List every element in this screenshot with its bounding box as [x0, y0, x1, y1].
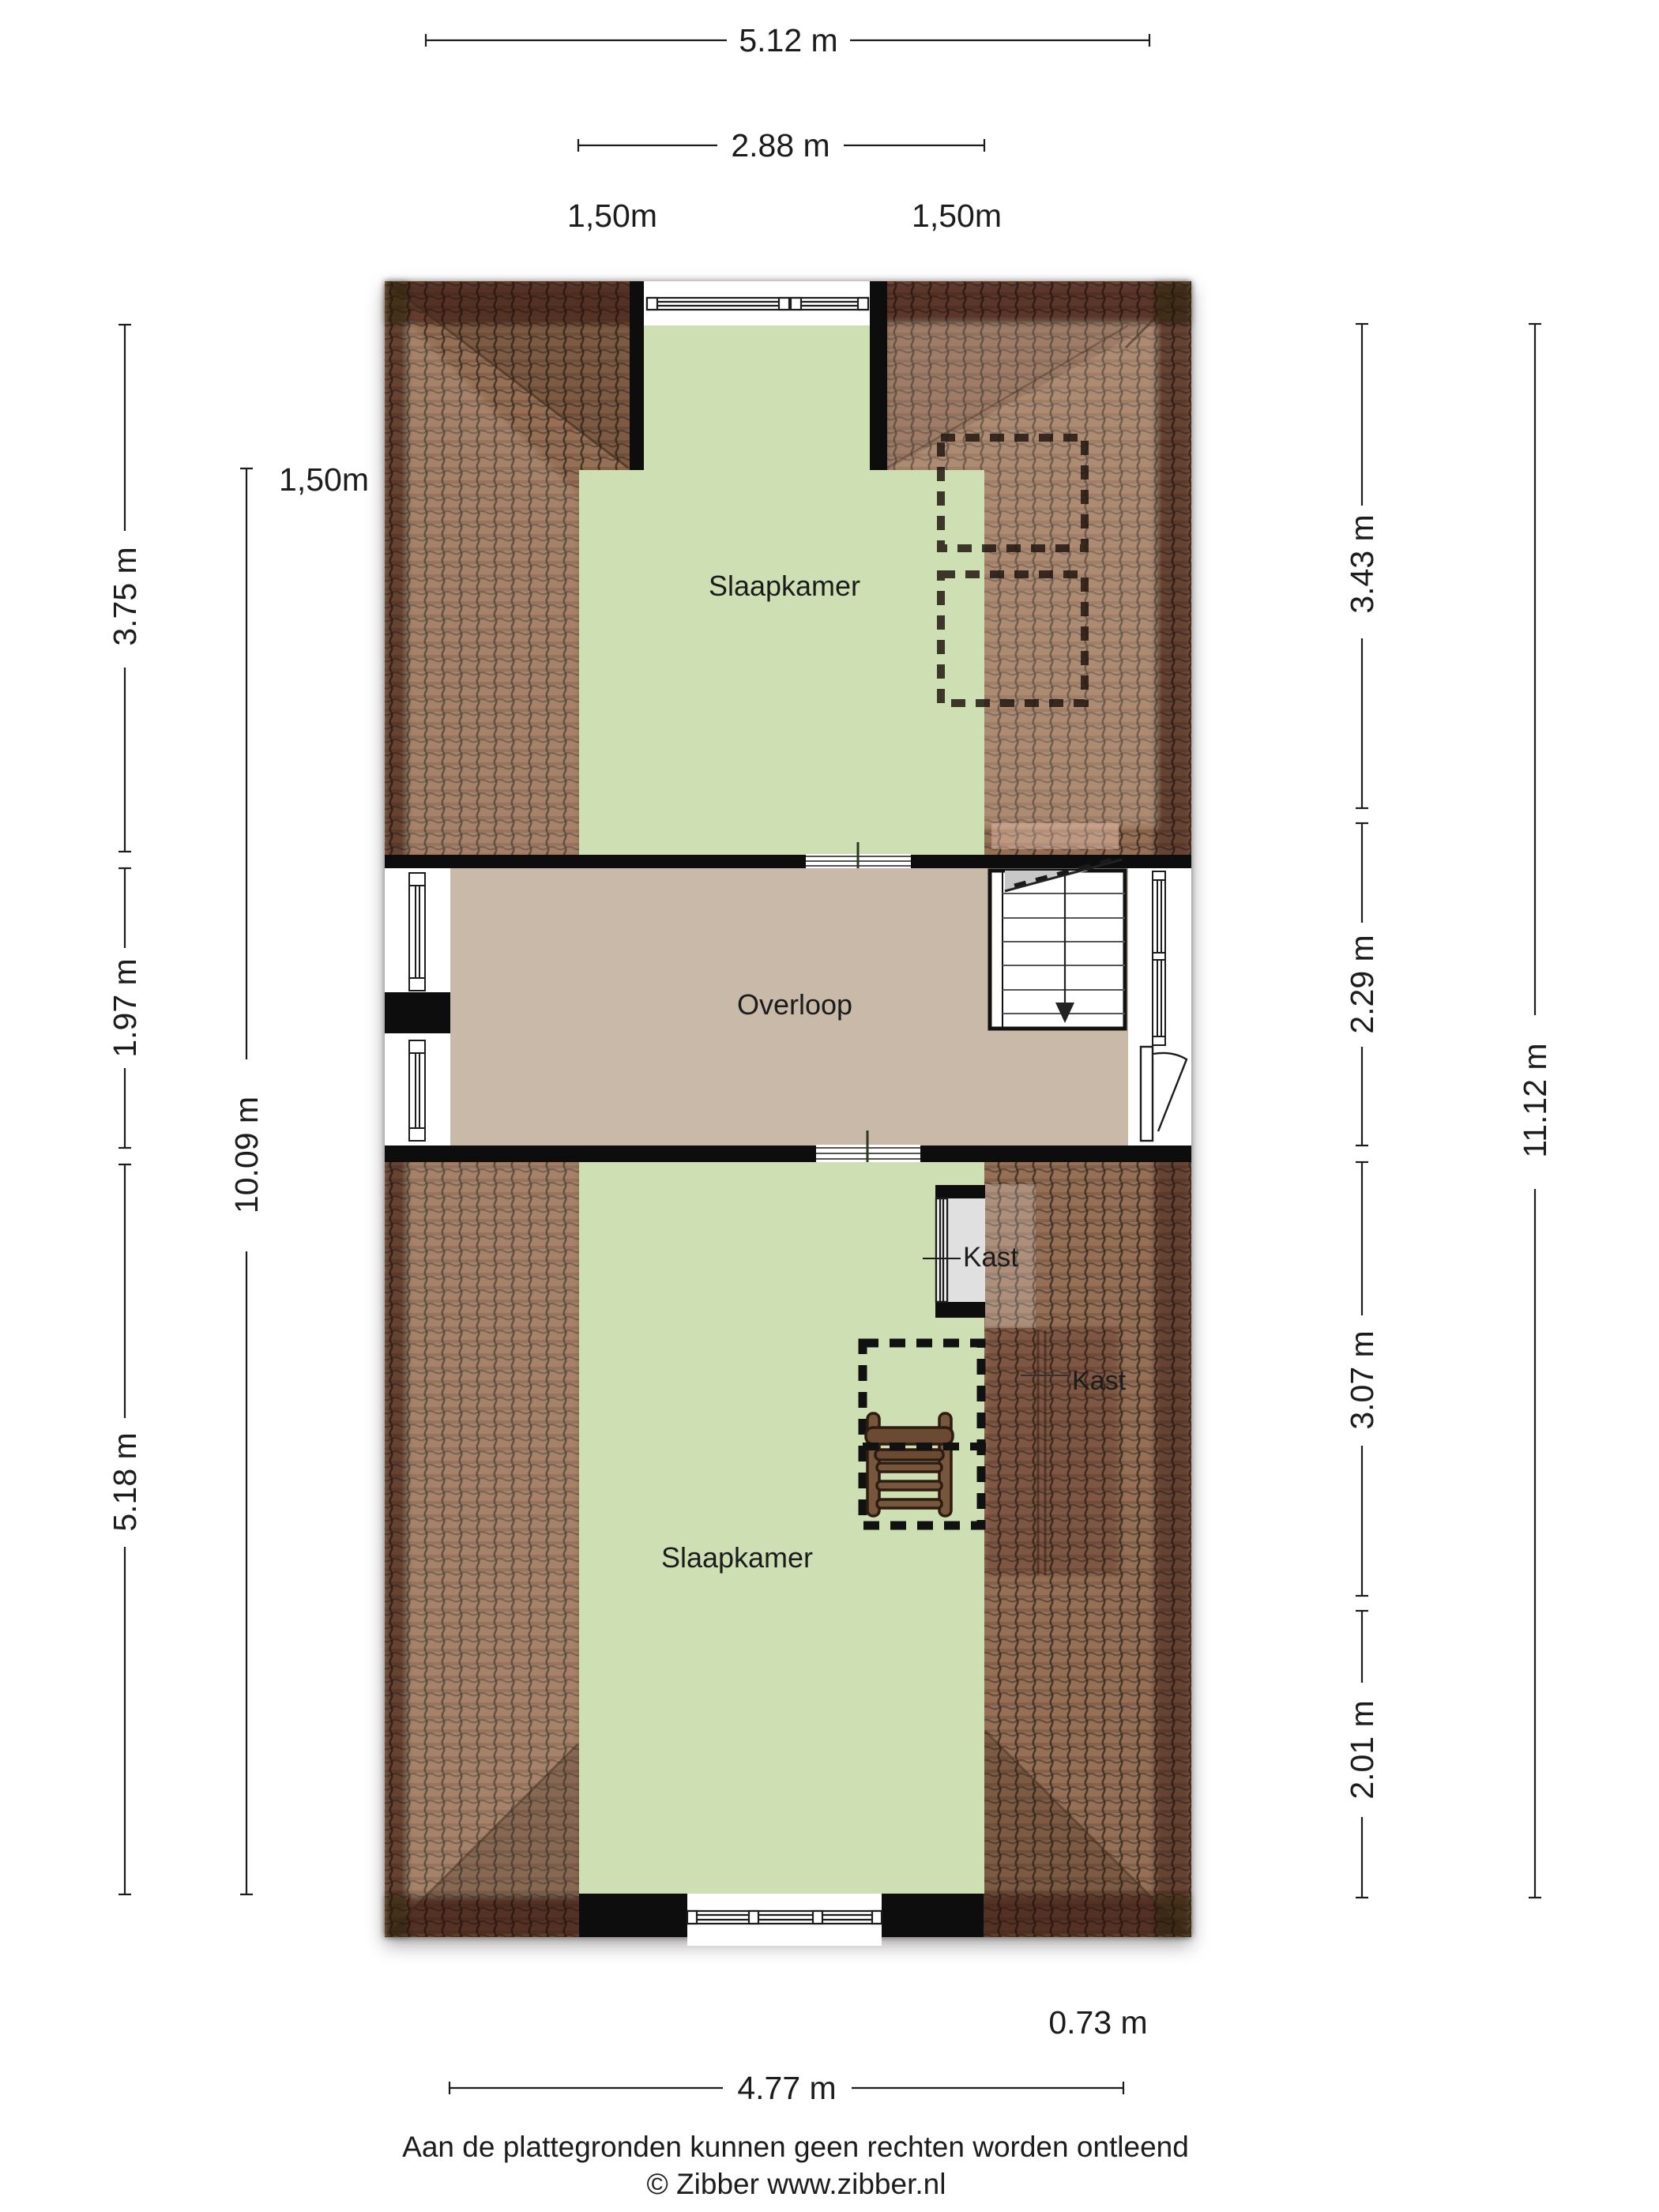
svg-text:1,50m: 1,50m: [279, 461, 369, 498]
svg-text:3.75 m: 3.75 m: [107, 547, 143, 645]
svg-text:Slaapkamer: Slaapkamer: [661, 1541, 813, 1574]
svg-text:1,50m: 1,50m: [567, 197, 657, 234]
svg-text:2.29 m: 2.29 m: [1344, 935, 1380, 1033]
svg-text:Overloop: Overloop: [737, 988, 852, 1021]
svg-text:Slaapkamer: Slaapkamer: [709, 570, 860, 602]
svg-text:2.88 m: 2.88 m: [731, 127, 829, 164]
svg-text:5.12 m: 5.12 m: [739, 22, 837, 58]
svg-text:© Zibber www.zibber.nl: © Zibber www.zibber.nl: [647, 2168, 946, 2200]
svg-text:0.73 m: 0.73 m: [1048, 2004, 1147, 2041]
svg-text:4.77 m: 4.77 m: [737, 2070, 836, 2106]
svg-text:2.01 m: 2.01 m: [1344, 1700, 1380, 1799]
svg-text:10.09 m: 10.09 m: [228, 1097, 265, 1213]
svg-text:Kast: Kast: [1072, 1366, 1127, 1396]
svg-text:5.18 m: 5.18 m: [107, 1432, 143, 1531]
svg-text:1,50m: 1,50m: [912, 197, 1002, 234]
svg-text:1.97 m: 1.97 m: [107, 958, 143, 1057]
svg-text:3.43 m: 3.43 m: [1344, 514, 1380, 613]
svg-text:Aan de plattegronden kunnen ge: Aan de plattegronden kunnen geen rechten…: [402, 2131, 1189, 2163]
svg-text:Kast: Kast: [963, 1242, 1018, 1273]
svg-text:3.07 m: 3.07 m: [1344, 1330, 1380, 1429]
svg-text:11.12 m: 11.12 m: [1517, 1043, 1553, 1157]
